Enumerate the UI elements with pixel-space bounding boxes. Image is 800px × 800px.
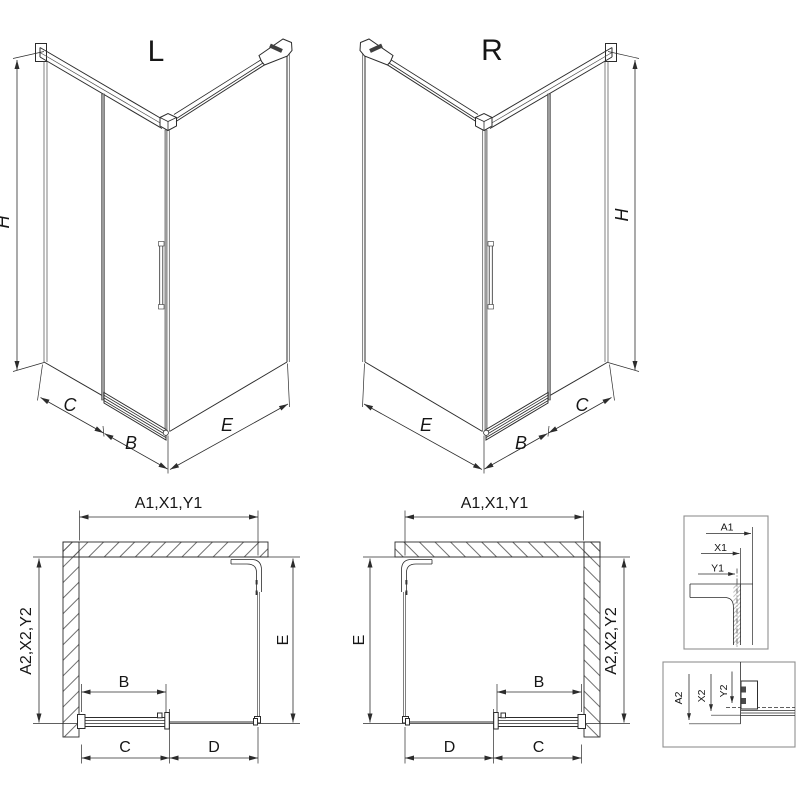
fixed-rail-end-cap <box>254 719 258 726</box>
plan-left-labels: A1,X1,Y1 A2,X2,Y2 E B C D <box>18 495 292 756</box>
bottom-guide-foot <box>163 430 168 435</box>
view-title-right: R <box>481 34 503 67</box>
technical-drawing-canvas: A1 X1 Y1 A2 X2 Y2 L H C B E R H E B C A1… <box>0 0 800 800</box>
plan-right-label-c: C <box>533 739 545 756</box>
door-leading-edge-profile <box>102 94 105 400</box>
plan-view-right-geometry <box>363 511 630 764</box>
dim-label-fixed-left: C <box>64 395 78 415</box>
plan-left-label-e: E <box>275 635 292 646</box>
plan-left-label-a2: A2,X2,Y2 <box>18 607 35 675</box>
plan-right-label-a1: A1,X1,Y1 <box>461 495 529 512</box>
dim-label-side-right: E <box>420 415 433 435</box>
plan-right-label-a2: A2,X2,Y2 <box>603 607 620 675</box>
view-title-left: L <box>148 35 165 68</box>
plan-right-label-d: D <box>444 739 456 756</box>
shower-enclosure-diagram: A1 X1 Y1 A2 X2 Y2 L H C B E R H E B C A1… <box>0 0 800 800</box>
corner-bracket-plan <box>231 560 262 593</box>
plan-left-label-c: C <box>119 739 131 756</box>
detail-label-a2: A2 <box>673 691 685 704</box>
detail-wall-profile <box>690 584 753 645</box>
door-handle-bottom-mount <box>159 305 165 310</box>
detail-ref-lines <box>741 527 753 645</box>
detail-label-y1: Y1 <box>711 563 724 575</box>
door-handle-bar <box>160 246 163 306</box>
door-end-cap <box>165 713 170 730</box>
dim-label-door-right: B <box>515 433 527 453</box>
detail-rail-tab-2 <box>741 698 746 704</box>
detail-box-frame <box>684 516 768 649</box>
detail-rail-block <box>741 681 758 709</box>
perspective-right-labels: R H E B C <box>420 34 632 453</box>
wall-top-hatched <box>63 542 268 557</box>
door-panel-plan <box>85 718 165 727</box>
door-handle-top-mount <box>159 242 165 247</box>
dim-label-fixed-right: C <box>576 395 590 415</box>
detail-rail-lines <box>741 711 795 716</box>
track-stripe <box>40 53 162 125</box>
detail-glass-section <box>733 584 740 645</box>
door-corner-edge-profile <box>165 130 167 432</box>
left-glass-far-edge <box>44 62 47 363</box>
door-wall-block <box>78 715 86 729</box>
wall-side-hatched <box>63 542 79 737</box>
perspective-view-left-geometry <box>13 39 292 474</box>
side-glass-plan <box>257 592 259 717</box>
detail-box-depth-refs: A2 X2 Y2 <box>663 662 795 747</box>
bracket-screw-1 <box>256 580 258 585</box>
side-glass-outline <box>170 51 288 432</box>
plan-left-label-d: D <box>208 739 220 756</box>
perspective-view-right-geometry <box>360 39 639 474</box>
door-roller-1 <box>158 713 163 718</box>
detail-box-width-refs: A1 X1 Y1 <box>684 516 768 649</box>
detail-label-x2: X2 <box>696 689 708 702</box>
dim-label-side-left: E <box>221 415 234 435</box>
plan-left-label-b: B <box>119 674 130 691</box>
dim-label-height-right: H <box>612 208 632 222</box>
plan-right-label-e: E <box>351 635 368 646</box>
dim-extension-lines <box>13 52 290 474</box>
detail-label-a1: A1 <box>721 522 734 534</box>
bracket-screw-2 <box>256 591 258 596</box>
dim-label-door-left: B <box>125 433 137 453</box>
detail-rail-tab-1 <box>741 687 746 693</box>
plan-view-left-geometry <box>33 511 300 764</box>
detail-label-x1: X1 <box>714 542 727 554</box>
plan-right-label-b: B <box>534 674 545 691</box>
plan-left-label-a1: A1,X1,Y1 <box>135 495 203 512</box>
support-bar <box>174 60 263 119</box>
detail-label-y2: Y2 <box>718 684 730 697</box>
dim-line-side <box>170 404 288 470</box>
detail-ref-lines-2 <box>689 715 741 724</box>
dim-label-height-left: H <box>0 215 13 229</box>
